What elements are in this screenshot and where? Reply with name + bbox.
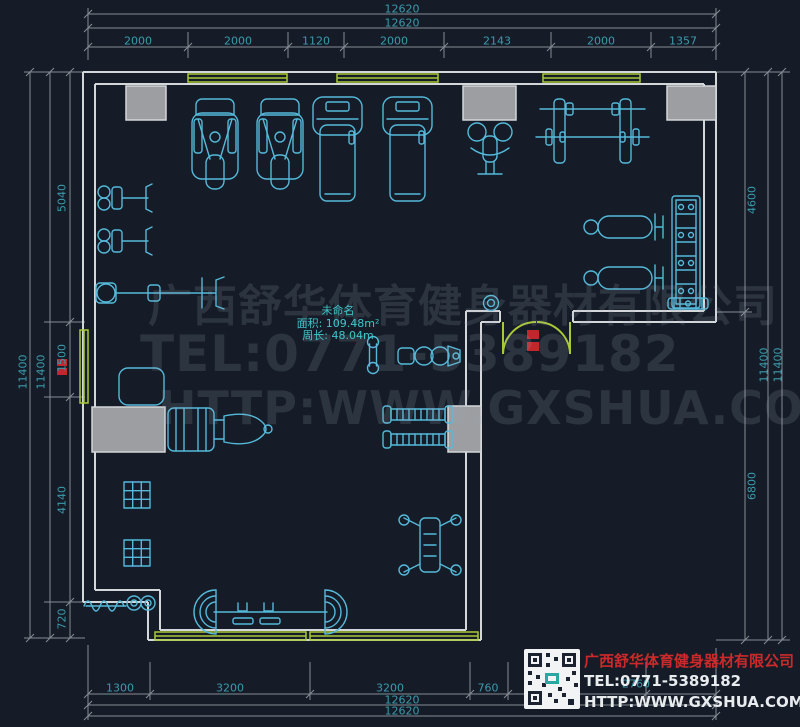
dim-top-seg: 2000 xyxy=(224,36,252,47)
dim-bottom-seg: 760 xyxy=(478,683,499,694)
dim-top-seg: 1120 xyxy=(302,36,330,47)
panel-telephone: TEL:0771-5389182 xyxy=(584,672,741,690)
room-name: 未命名 xyxy=(268,305,408,318)
dim-bottom-seg: 1300 xyxy=(106,683,134,694)
battle-rope xyxy=(84,596,155,611)
dim-bottom-total-2: 12620 xyxy=(385,706,420,717)
dim-top-seg: 2143 xyxy=(483,36,511,47)
dim-right-seg: 4600 xyxy=(747,186,758,214)
dim-bottom-seg: 3200 xyxy=(376,683,404,694)
dim-top-total-2: 12620 xyxy=(385,18,420,29)
dim-left-seg: 720 xyxy=(57,609,68,630)
dim-right-total-2: 11400 xyxy=(773,348,784,383)
cable-station xyxy=(399,515,461,575)
barbell-rack xyxy=(536,99,649,163)
dim-right-total-1: 11400 xyxy=(759,348,770,383)
dim-bottom-seg: 3200 xyxy=(216,683,244,694)
room-label: 未命名 面积: 109.48m² 周长: 48.04m xyxy=(268,305,408,343)
dim-left-seg: 5040 xyxy=(57,184,68,212)
window-grid xyxy=(124,482,150,508)
treadmill xyxy=(383,97,432,201)
watermark-url: HTTP:WWW.GXSHUA.COM xyxy=(158,381,800,435)
barbell-station xyxy=(194,590,347,634)
dim-top-seg: 2000 xyxy=(587,36,615,47)
dim-left-seg: 4140 xyxy=(57,486,68,514)
dim-left-seg: 1500 xyxy=(57,344,68,372)
treadmill xyxy=(313,97,362,201)
panel-company-name: 广西舒华体育健身器材有限公司 xyxy=(584,650,794,671)
window-grid xyxy=(124,540,150,566)
company-info-panel: 广西舒华体育健身器材有限公司 TEL:0771-5389182 HTTP:WWW… xyxy=(518,645,800,727)
lat-machine xyxy=(98,184,152,212)
lat-machine xyxy=(98,227,152,255)
flat-bench xyxy=(584,214,663,240)
dim-left-total-2: 11400 xyxy=(36,355,47,390)
qr-code xyxy=(524,649,580,709)
watermark-tel: TEL:0771-5389182 xyxy=(140,325,680,383)
multi-station-gym xyxy=(192,99,238,189)
pec-deck-machine xyxy=(468,123,512,174)
dim-top-seg: 1357 xyxy=(669,36,697,47)
dim-left-total-1: 11400 xyxy=(18,355,29,390)
dim-top-seg: 2000 xyxy=(380,36,408,47)
dim-top-total-1: 12620 xyxy=(385,4,420,15)
cad-floorplan-view: 广西舒华体育健身器材有限公司 TEL:0771-5389182 HTTP:WWW… xyxy=(0,0,800,727)
room-perimeter: 周长: 48.04m xyxy=(268,330,408,343)
dim-top-seg: 2000 xyxy=(124,36,152,47)
panel-website: HTTP:WWW.GXSHUA.COM xyxy=(584,693,800,711)
dim-right-seg: 6800 xyxy=(747,472,758,500)
multi-station-gym xyxy=(257,99,303,189)
